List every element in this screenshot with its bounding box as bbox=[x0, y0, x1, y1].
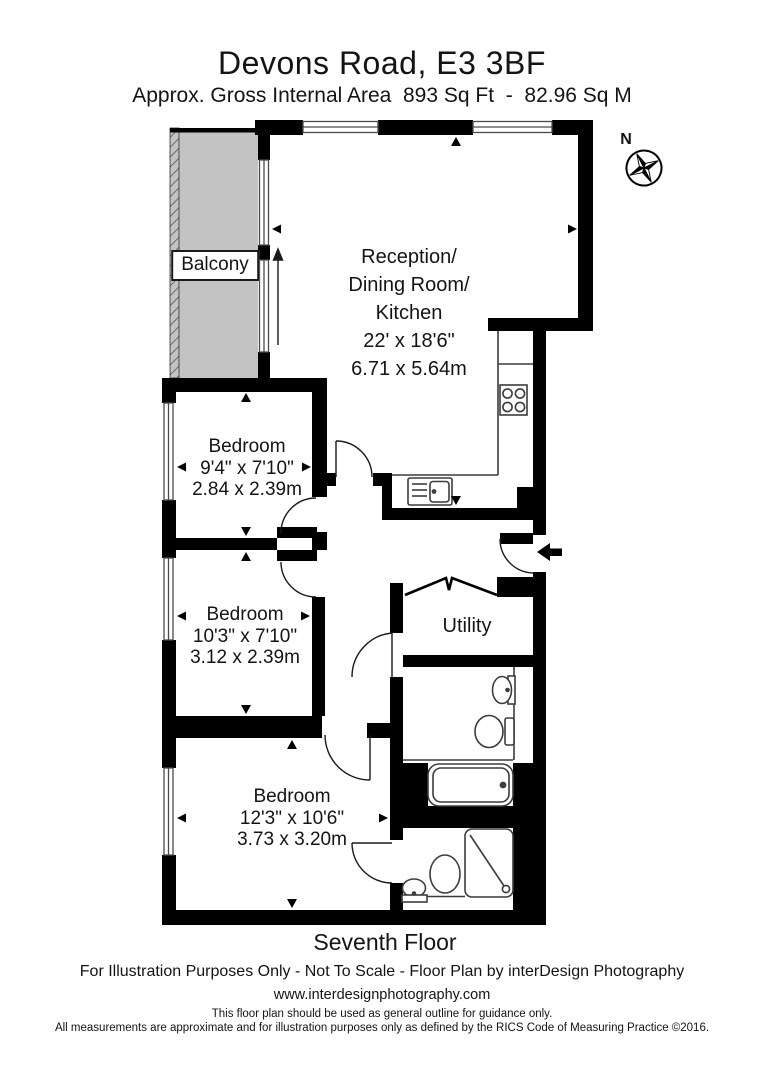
bedroom3-label: Bedroom 12'3" x 10'6" 3.73 x 3.20m bbox=[237, 786, 347, 851]
room-dims-metric: 3.73 x 3.20m bbox=[237, 829, 347, 851]
footer-website-link[interactable]: www.interdesignphotography.com bbox=[274, 987, 491, 1004]
utility-label: Utility bbox=[443, 615, 492, 638]
room-dims-imperial: 22' x 18'6" bbox=[348, 327, 469, 355]
hob-icon bbox=[500, 385, 527, 415]
room-dims-metric: 2.84 x 2.39m bbox=[192, 479, 302, 501]
room-name: Bedroom bbox=[190, 604, 300, 626]
room-dims-metric: 3.12 x 2.39m bbox=[190, 647, 300, 669]
bedroom2-door-arc bbox=[281, 562, 316, 597]
toilet-icon bbox=[475, 716, 514, 748]
bedroom2-label: Bedroom 10'3" x 7'10" 3.12 x 2.39m bbox=[190, 604, 300, 669]
shower-icon bbox=[465, 829, 513, 897]
bathtub-icon bbox=[428, 764, 513, 806]
ensuite-door-arc bbox=[352, 843, 392, 883]
bathroom-door-arc bbox=[352, 633, 392, 677]
room-dims-imperial: 10'3" x 7'10" bbox=[190, 626, 300, 648]
reception-door-arc bbox=[336, 441, 372, 477]
basin-icon bbox=[402, 879, 427, 902]
room-name-line: Dining Room/ bbox=[348, 271, 469, 299]
utility-bifold-door bbox=[405, 578, 497, 595]
floor-level-label: Seventh Floor bbox=[313, 929, 456, 955]
page-title: Devons Road, E3 3BF bbox=[218, 45, 546, 82]
footer-rics-note: All measurements are approximate and for… bbox=[55, 1022, 709, 1035]
compass-north-label: N bbox=[620, 131, 632, 149]
floor-plan-drawing bbox=[0, 0, 764, 1080]
bedroom1-label: Bedroom 9'4" x 7'10" 2.84 x 2.39m bbox=[192, 436, 302, 501]
room-dims-imperial: 9'4" x 7'10" bbox=[192, 458, 302, 480]
entrance-arrow-icon bbox=[537, 543, 562, 561]
room-name-line: Kitchen bbox=[348, 299, 469, 327]
basin-icon bbox=[493, 676, 516, 704]
sink-icon bbox=[408, 478, 452, 505]
page-subtitle: Approx. Gross Internal Area 893 Sq Ft - … bbox=[132, 84, 632, 108]
footer-guidance-note: This floor plan should be used as genera… bbox=[212, 1008, 553, 1021]
entrance-door-arc bbox=[500, 539, 533, 573]
ensuite-fixtures bbox=[402, 829, 513, 902]
room-dims-imperial: 12'3" x 10'6" bbox=[237, 808, 347, 830]
toilet-icon bbox=[430, 855, 460, 893]
room-name: Bedroom bbox=[237, 786, 347, 808]
compass-rose-icon bbox=[620, 144, 667, 191]
reception-label: Reception/ Dining Room/ Kitchen 22' x 18… bbox=[348, 243, 469, 383]
bedroom3-door-arc bbox=[325, 735, 370, 780]
balcony-label: Balcony bbox=[171, 250, 259, 281]
room-dims-metric: 6.71 x 5.64m bbox=[348, 355, 469, 383]
room-name-line: Reception/ bbox=[348, 243, 469, 271]
floor-plan-page: Devons Road, E3 3BF Approx. Gross Intern… bbox=[0, 0, 764, 1080]
room-name: Bedroom bbox=[192, 436, 302, 458]
footer-disclaimer: For Illustration Purposes Only - Not To … bbox=[80, 963, 684, 981]
balcony-access-arrow-icon bbox=[274, 249, 283, 345]
